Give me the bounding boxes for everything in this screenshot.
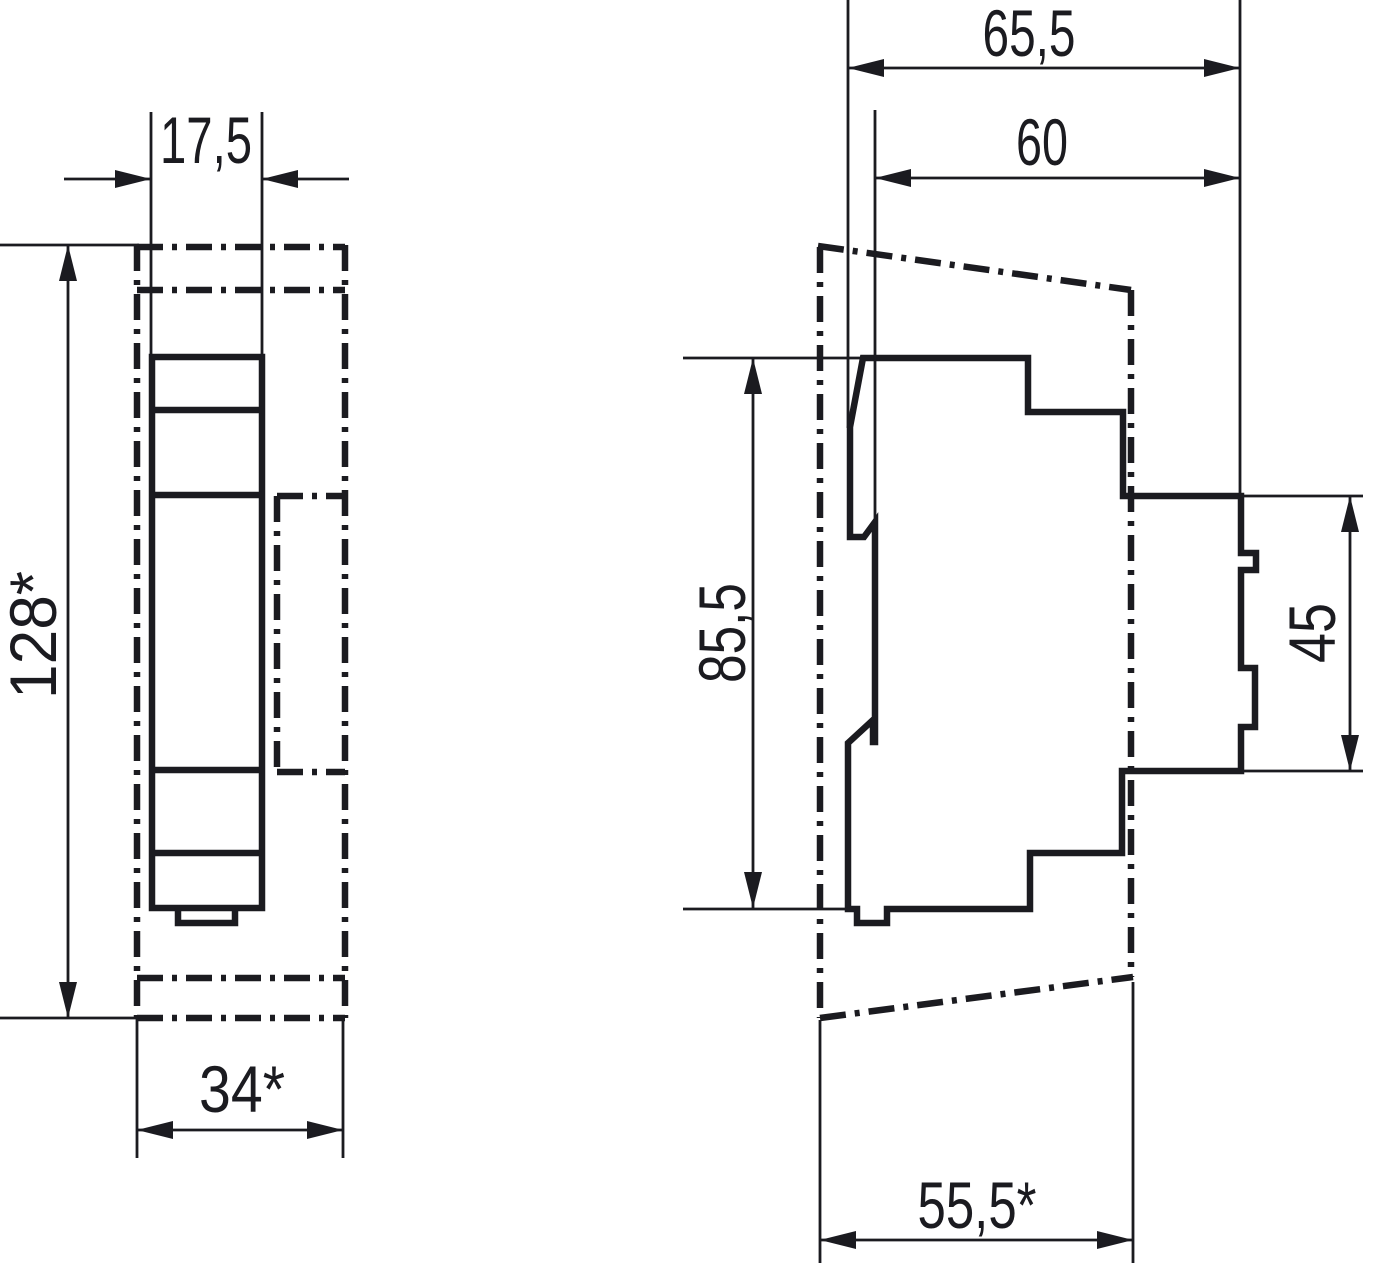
side-body-height-label: 85,5 bbox=[685, 583, 759, 683]
front-height-label: 128* bbox=[0, 571, 70, 699]
front-width-label: 17,5 bbox=[160, 103, 252, 177]
side-device-outline bbox=[848, 358, 1256, 923]
front-device-outline bbox=[152, 357, 262, 923]
front-view: 17,5 128* 34* bbox=[0, 103, 349, 1158]
side-body-depth-label: 60 bbox=[1016, 105, 1068, 179]
front-dimensions: 17,5 128* 34* bbox=[0, 103, 349, 1158]
device-body-side bbox=[848, 358, 1256, 923]
side-dimensions: 65,5 60 85,5 45 55,5* bbox=[683, 0, 1363, 1263]
front-mount-width-label: 34* bbox=[199, 1052, 285, 1126]
device-body-front bbox=[152, 357, 262, 908]
side-mount-depth-label: 55,5* bbox=[918, 1168, 1037, 1242]
side-view: 65,5 60 85,5 45 55,5* bbox=[683, 0, 1363, 1263]
side-terminal-height-label: 45 bbox=[1275, 603, 1349, 663]
phantom-line bbox=[820, 977, 1133, 1018]
dimension-drawing-page: 17,5 128* 34* bbox=[0, 0, 1378, 1268]
dimension-drawing: 17,5 128* 34* bbox=[0, 0, 1378, 1268]
phantom-line bbox=[818, 246, 1131, 290]
side-total-depth-label: 65,5 bbox=[983, 0, 1076, 70]
front-phantom-outline bbox=[137, 245, 345, 1018]
